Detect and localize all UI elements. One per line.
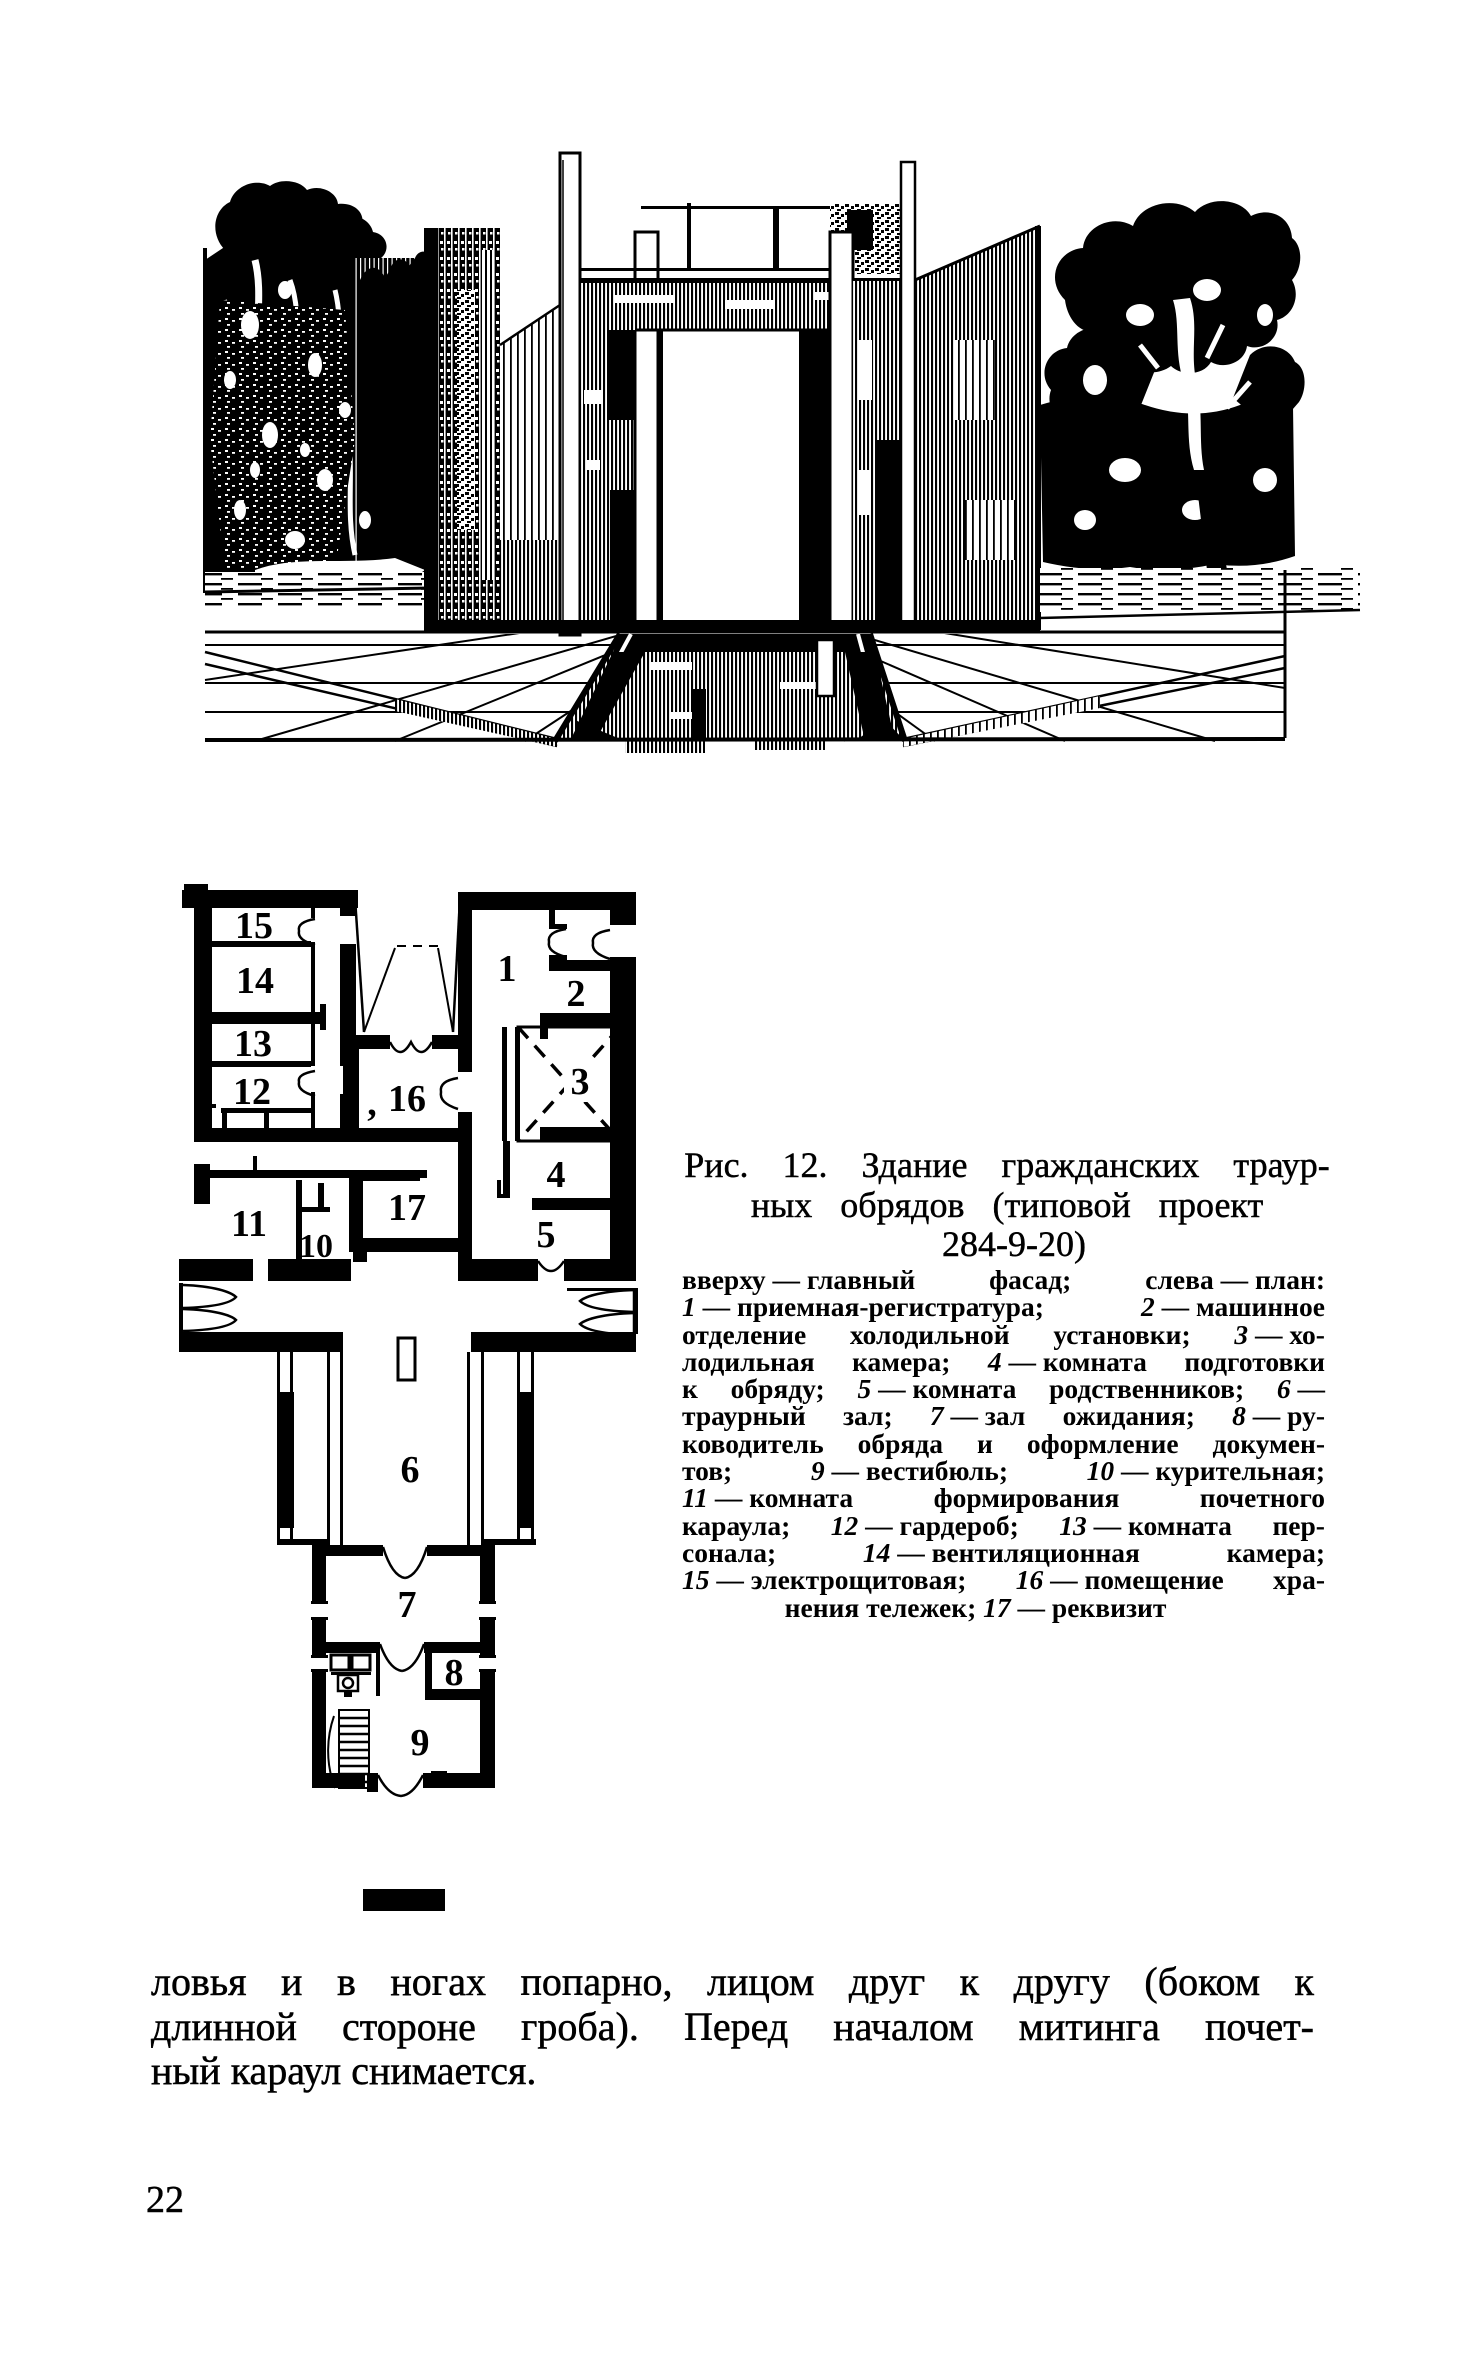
svg-text:12: 12 [233, 1071, 271, 1113]
svg-text:15: 15 [235, 905, 273, 947]
svg-text:1: 1 [498, 948, 517, 990]
svg-text:7: 7 [398, 1584, 417, 1626]
svg-text:,: , [367, 1082, 377, 1124]
svg-text:11: 11 [231, 1203, 267, 1245]
svg-text:13: 13 [234, 1023, 272, 1065]
svg-text:3: 3 [571, 1061, 590, 1103]
svg-text:16: 16 [388, 1078, 426, 1120]
svg-text:8: 8 [445, 1652, 464, 1694]
svg-text:9: 9 [411, 1722, 430, 1764]
svg-text:14: 14 [236, 960, 274, 1002]
svg-text:17: 17 [388, 1187, 426, 1229]
svg-text:6: 6 [401, 1449, 420, 1491]
svg-text:2: 2 [567, 973, 586, 1015]
svg-text:5: 5 [537, 1214, 556, 1256]
svg-text:4: 4 [547, 1154, 566, 1196]
